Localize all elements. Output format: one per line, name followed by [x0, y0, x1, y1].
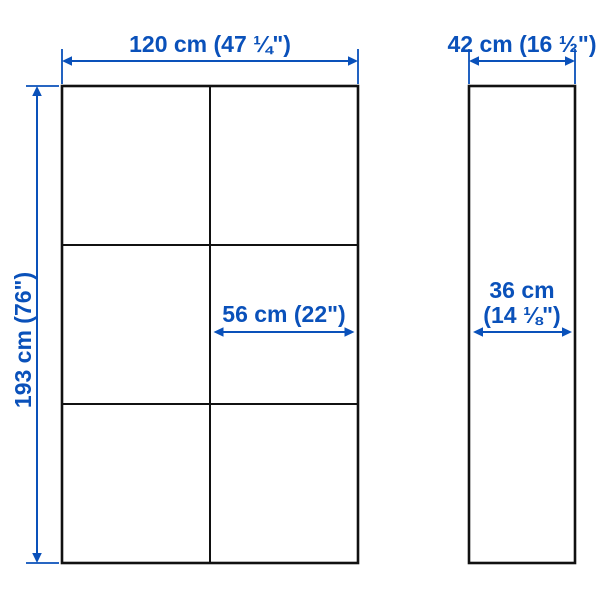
side-width-dimension: 42 cm (16 ½")	[448, 31, 597, 84]
arrow-left-icon	[214, 327, 224, 337]
front-width-label: 120 cm (47 ¼")	[129, 31, 291, 57]
diagram-svg: 120 cm (47 ¼") 193 cm (76") 56 cm (22")	[0, 0, 600, 600]
arrow-right-icon	[348, 56, 358, 66]
arrow-left-icon	[62, 56, 72, 66]
arrow-left-icon	[473, 327, 483, 337]
side-depth-label-line2: (14 ⅛")	[483, 302, 560, 328]
side-depth-dimension: 36 cm (14 ⅛")	[473, 277, 572, 337]
dimension-diagram: 120 cm (47 ¼") 193 cm (76") 56 cm (22")	[0, 0, 600, 600]
arrow-right-icon	[565, 56, 575, 66]
arrow-right-icon	[562, 327, 572, 337]
front-height-label: 193 cm (76")	[10, 272, 36, 408]
arrow-up-icon	[32, 86, 42, 96]
inner-width-dimension: 56 cm (22")	[214, 301, 355, 337]
side-depth-label-line1: 36 cm	[489, 277, 554, 303]
arrow-left-icon	[469, 56, 479, 66]
arrow-down-icon	[32, 553, 42, 563]
front-height-dimension: 193 cm (76")	[10, 86, 59, 563]
arrow-right-icon	[345, 327, 355, 337]
front-width-dimension: 120 cm (47 ¼")	[62, 31, 358, 84]
inner-width-label: 56 cm (22")	[222, 301, 345, 327]
